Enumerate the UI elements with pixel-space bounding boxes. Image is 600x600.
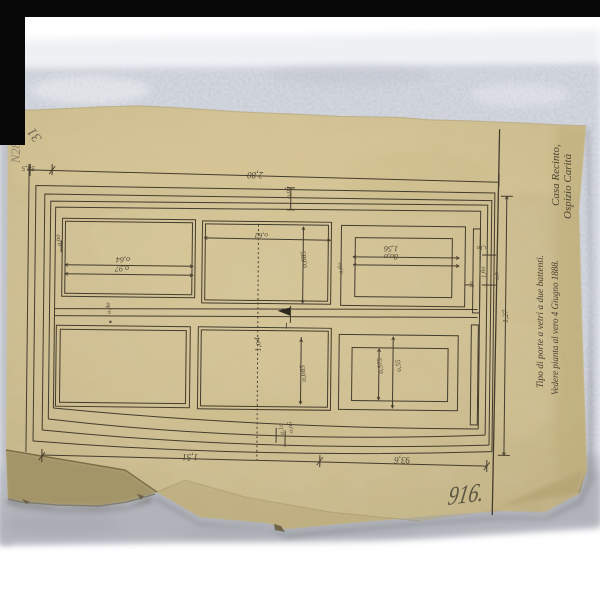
svg-text:o,62: o,62	[255, 231, 268, 240]
svg-text:o,575: o,575	[376, 357, 385, 374]
svg-text:5o,5: 5o,5	[22, 164, 35, 173]
svg-text:2,80: 2,80	[247, 170, 263, 180]
svg-text:1,27: 1,27	[501, 309, 510, 323]
svg-text:1,o4: 1,o4	[252, 336, 263, 352]
svg-text:o,1o: o,1o	[476, 244, 488, 251]
svg-text:Casa Recinto,: Casa Recinto,	[550, 144, 562, 206]
svg-text:Ospizio Carità: Ospizio Carità	[562, 153, 574, 219]
svg-text:o,55: o,55	[394, 359, 403, 372]
svg-text:o,685: o,685	[298, 364, 308, 382]
svg-text:1,51: 1,51	[182, 452, 198, 462]
svg-text:916.: 916.	[446, 478, 486, 511]
svg-text:o,97: o,97	[114, 264, 129, 273]
svg-text:o,685: o,685	[299, 250, 309, 268]
svg-text:o,64: o,64	[116, 255, 130, 264]
svg-text:93,6: 93,6	[394, 455, 410, 465]
svg-text:1,56: 1,56	[384, 244, 398, 253]
svg-text:Tipo di porte a vetri a due ba: Tipo di porte a vetri a due battenti.	[536, 255, 546, 388]
svg-text:Vedere pianta al vero 4 Giugno: Vedere pianta al vero 4 Giugno 1888.	[550, 260, 560, 395]
svg-text:8o,o: 8o,o	[384, 252, 398, 261]
